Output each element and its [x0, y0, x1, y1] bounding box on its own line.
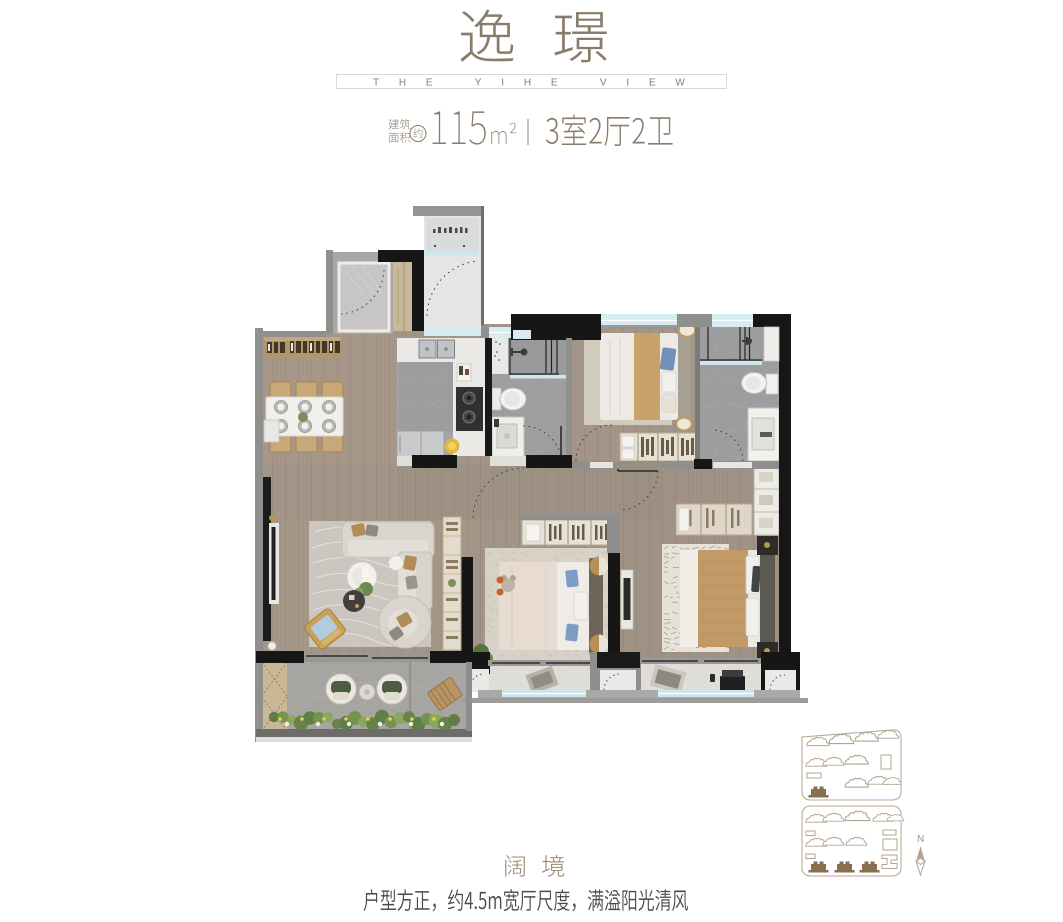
svg-text:N: N [917, 834, 924, 845]
svg-text:THE YIHE VIEW: THE YIHE VIEW [373, 78, 705, 89]
